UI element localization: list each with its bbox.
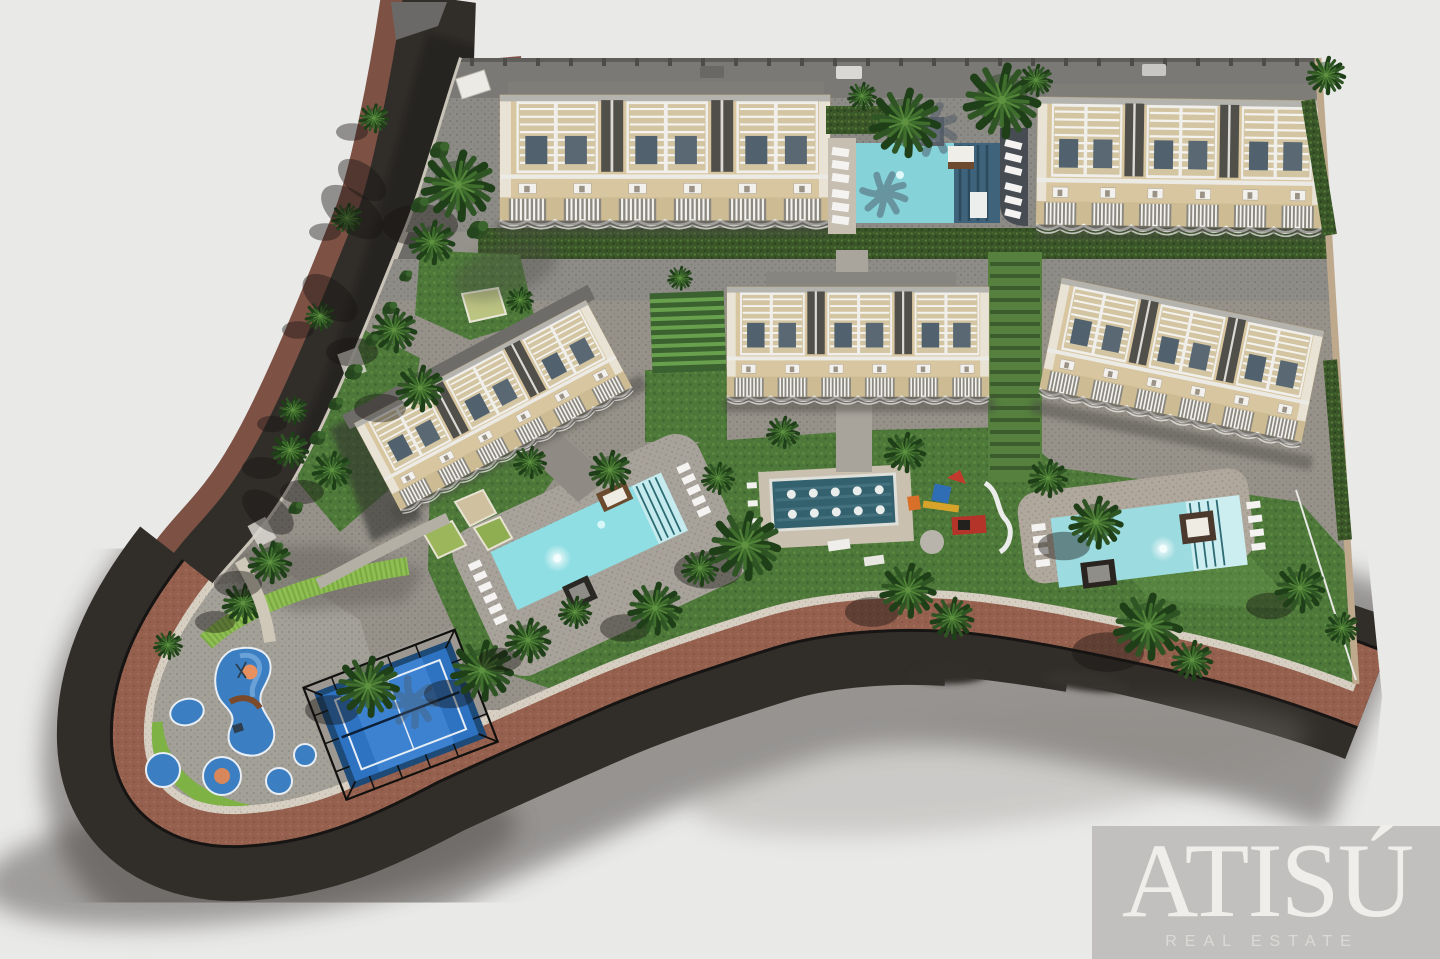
svg-text:REAL ESTATE: REAL ESTATE (1165, 933, 1359, 950)
svg-text:ATISÚ: ATISÚ (1122, 822, 1413, 939)
